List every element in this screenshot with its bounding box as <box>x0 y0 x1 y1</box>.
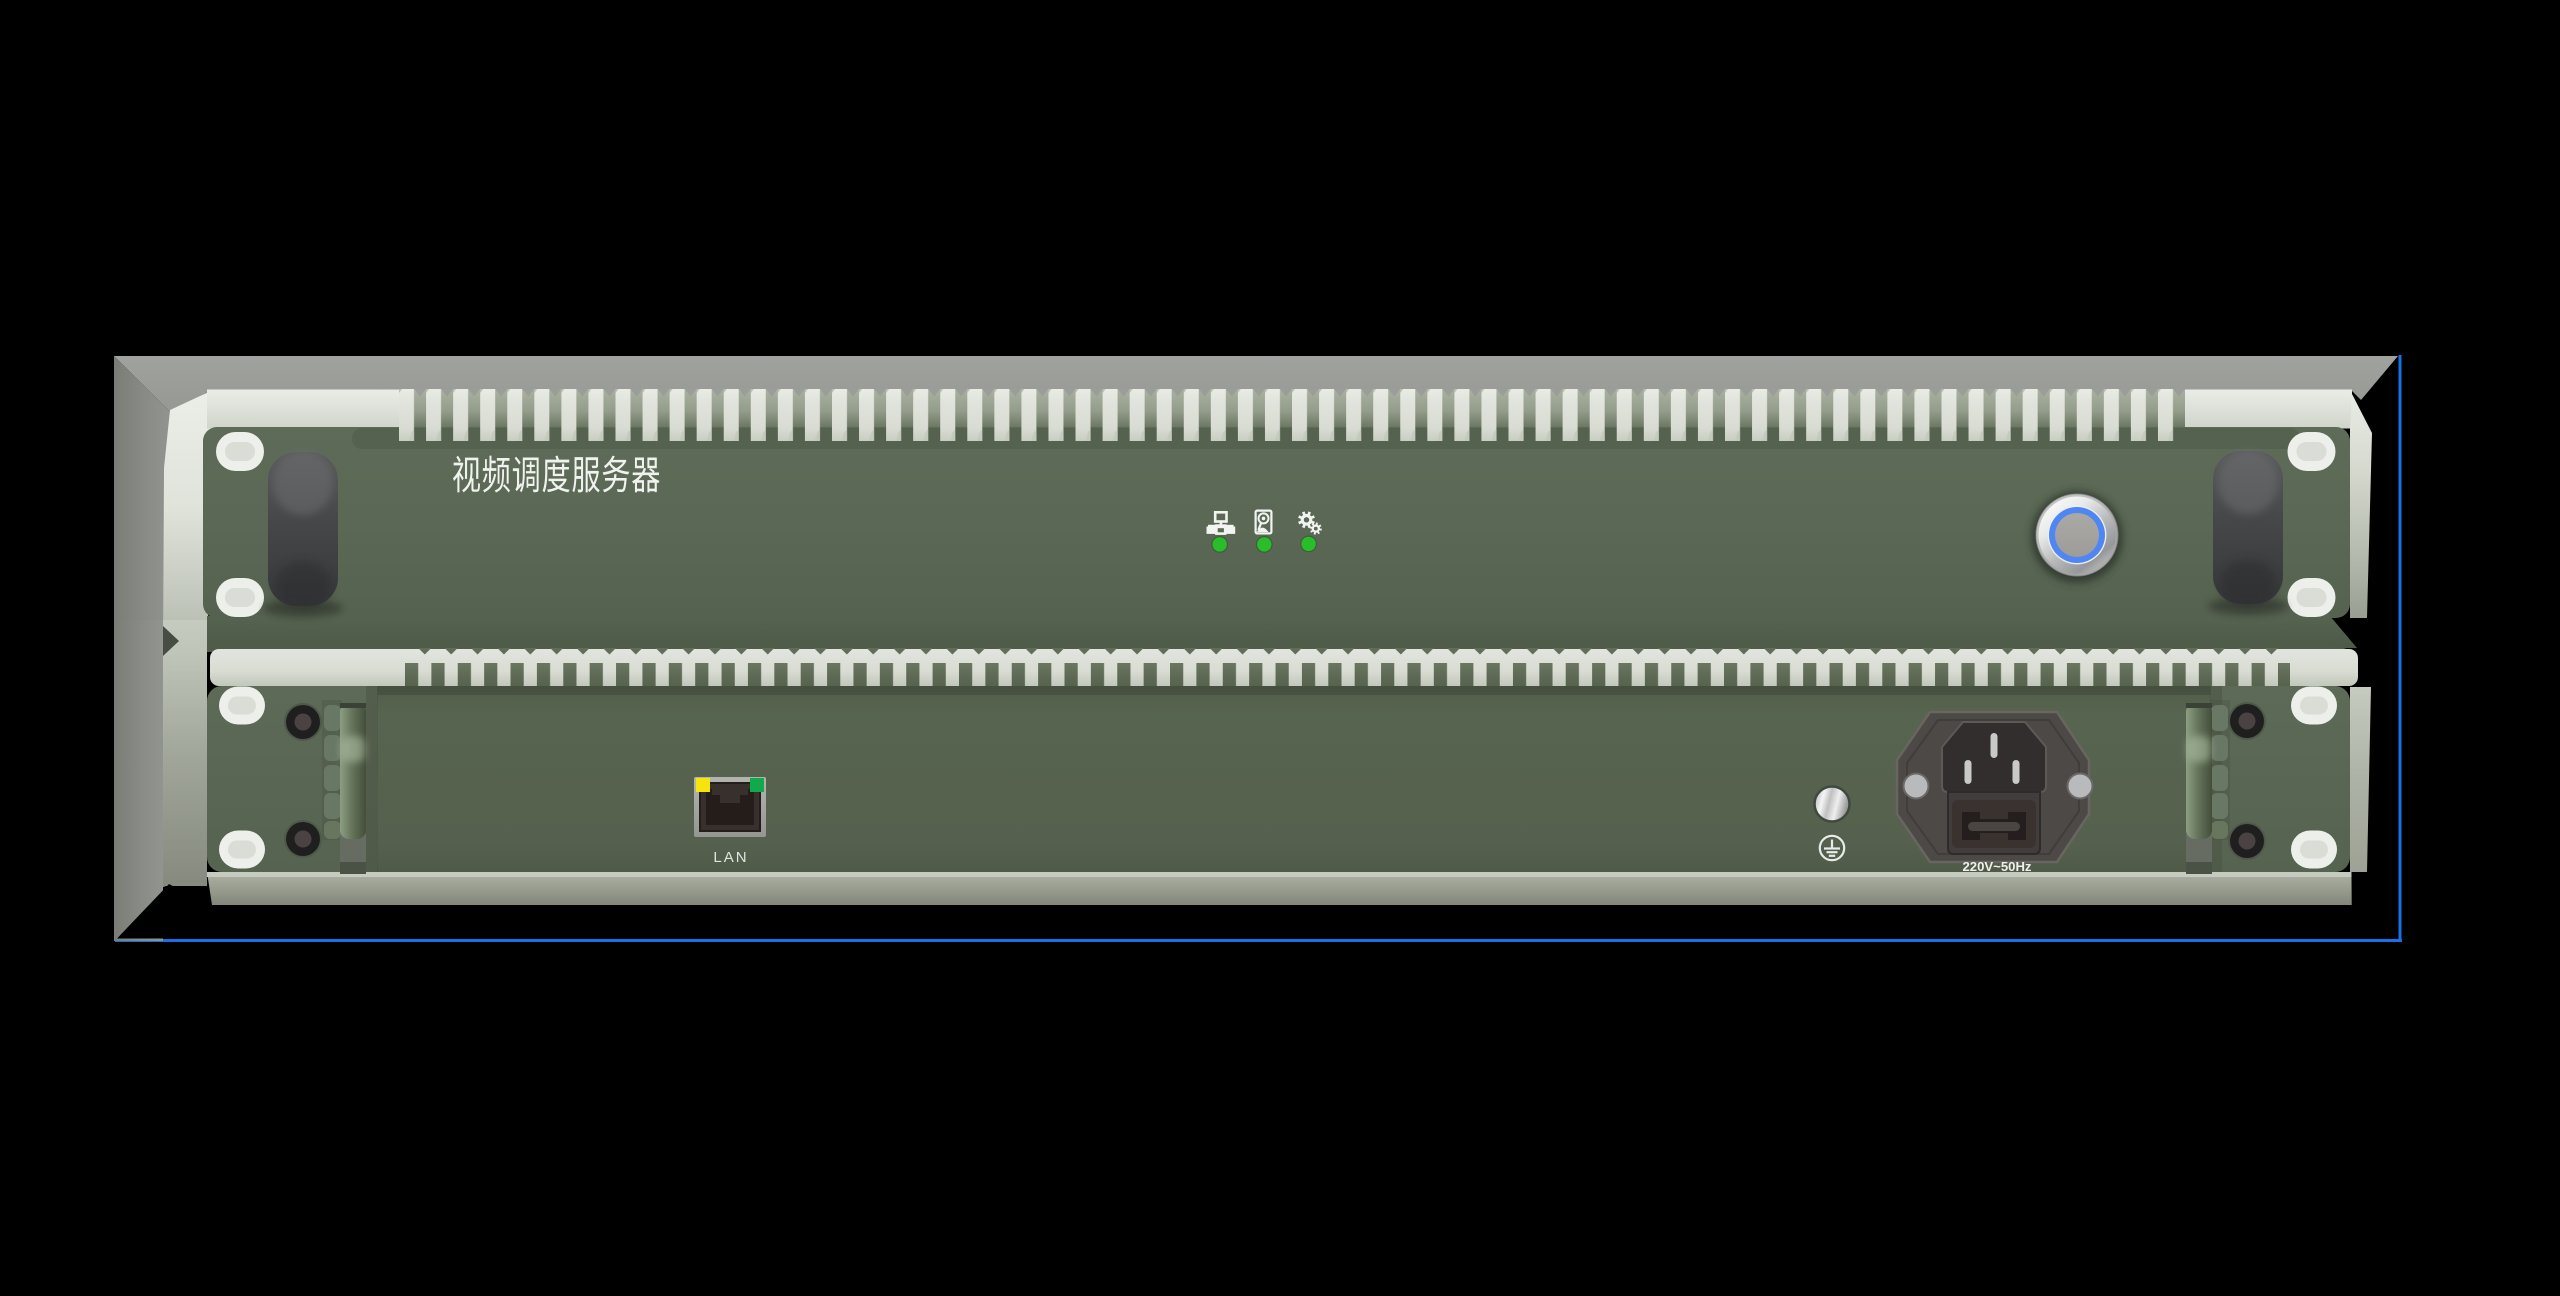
svg-text:LAN: LAN <box>713 849 748 866</box>
svg-text:220V~50Hz: 220V~50Hz <box>1963 859 2032 874</box>
